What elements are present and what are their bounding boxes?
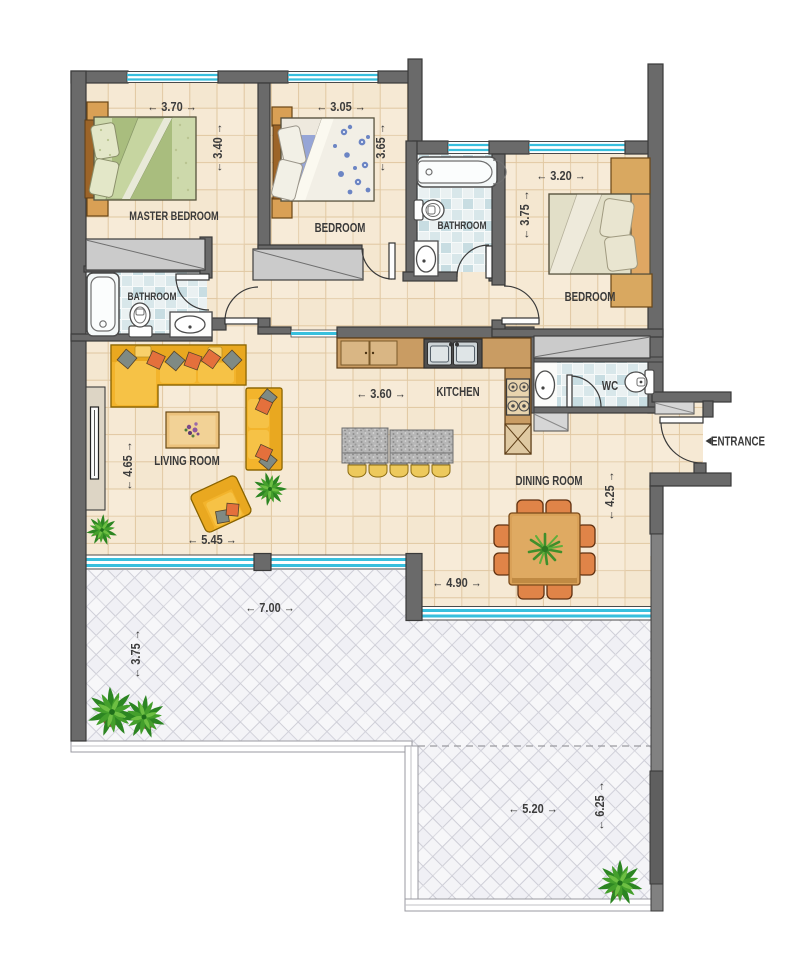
svg-text:BATHROOM: BATHROOM bbox=[128, 291, 177, 303]
svg-text:KITCHEN: KITCHEN bbox=[436, 386, 479, 399]
svg-text:← 3.20 →: ← 3.20 → bbox=[536, 169, 585, 183]
svg-text:← 7.00 →: ← 7.00 → bbox=[245, 601, 294, 615]
svg-text:← 3.70 →: ← 3.70 → bbox=[147, 100, 196, 114]
svg-text:← 3.75 →: ← 3.75 → bbox=[129, 629, 143, 678]
svg-text:← 3.65 →: ← 3.65 → bbox=[374, 123, 388, 172]
svg-text:LIVING ROOM: LIVING ROOM bbox=[154, 455, 219, 468]
svg-text:← 3.75 →: ← 3.75 → bbox=[518, 190, 532, 239]
svg-text:← 4.90 →: ← 4.90 → bbox=[432, 576, 481, 590]
svg-text:← 3.60 →: ← 3.60 → bbox=[356, 387, 405, 401]
svg-text:WC: WC bbox=[602, 380, 618, 393]
svg-text:← 4.65 →: ← 4.65 → bbox=[121, 441, 135, 490]
svg-text:← 3.40 →: ← 3.40 → bbox=[211, 123, 225, 172]
svg-text:ENTRANCE: ENTRANCE bbox=[711, 435, 766, 448]
svg-text:BEDROOM: BEDROOM bbox=[565, 291, 616, 304]
svg-text:BATHROOM: BATHROOM bbox=[438, 220, 487, 232]
svg-text:← 5.20 →: ← 5.20 → bbox=[508, 802, 557, 816]
svg-text:MASTER BEDROOM: MASTER BEDROOM bbox=[129, 210, 219, 223]
svg-text:← 3.05 →: ← 3.05 → bbox=[316, 100, 365, 114]
svg-text:BEDROOM: BEDROOM bbox=[315, 222, 366, 235]
svg-text:← 6.25 →: ← 6.25 → bbox=[593, 781, 607, 830]
svg-text:DINING ROOM: DINING ROOM bbox=[515, 475, 582, 488]
svg-text:← 4.25 →: ← 4.25 → bbox=[603, 471, 617, 520]
svg-text:← 5.45 →: ← 5.45 → bbox=[187, 533, 236, 547]
